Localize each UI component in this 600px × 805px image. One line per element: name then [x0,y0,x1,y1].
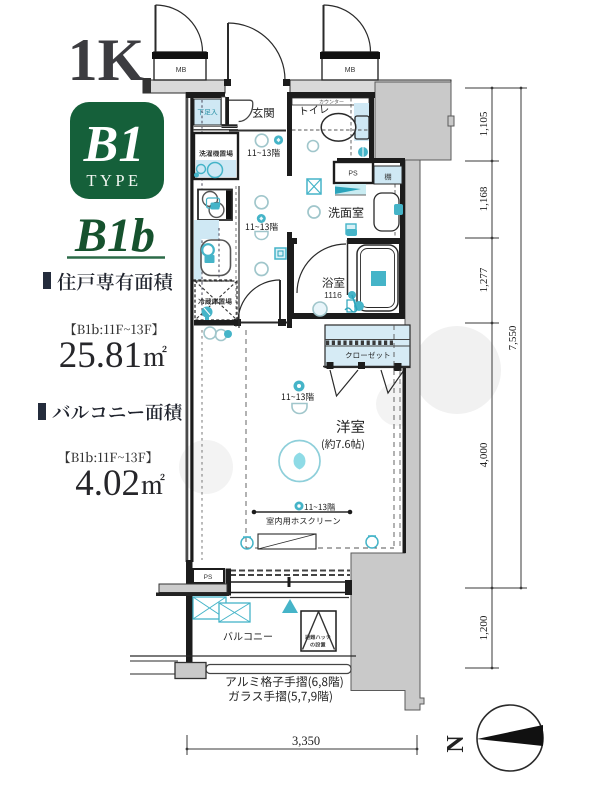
svg-text:1,168: 1,168 [478,186,490,211]
svg-text:MB: MB [176,67,187,74]
svg-text:N: N [443,735,469,753]
svg-text:7,550: 7,550 [507,325,519,350]
svg-text:1,277: 1,277 [478,267,490,292]
svg-text:MB: MB [345,67,356,74]
svg-text:25.81: 25.81 [59,335,142,376]
svg-text:3,350: 3,350 [292,734,320,748]
svg-text:PS: PS [348,171,358,178]
svg-text:B1b: B1b [74,209,155,262]
svg-text:1,105: 1,105 [478,111,490,136]
svg-text:4.02: 4.02 [75,463,140,504]
svg-text:1K: 1K [68,27,145,93]
svg-text:4,000: 4,000 [478,442,490,467]
svg-text:PS: PS [204,574,213,581]
svg-text:TYPE: TYPE [86,171,141,190]
svg-text:1116: 1116 [324,290,342,300]
svg-text:1,200: 1,200 [478,615,490,640]
svg-text:B1: B1 [83,116,145,173]
